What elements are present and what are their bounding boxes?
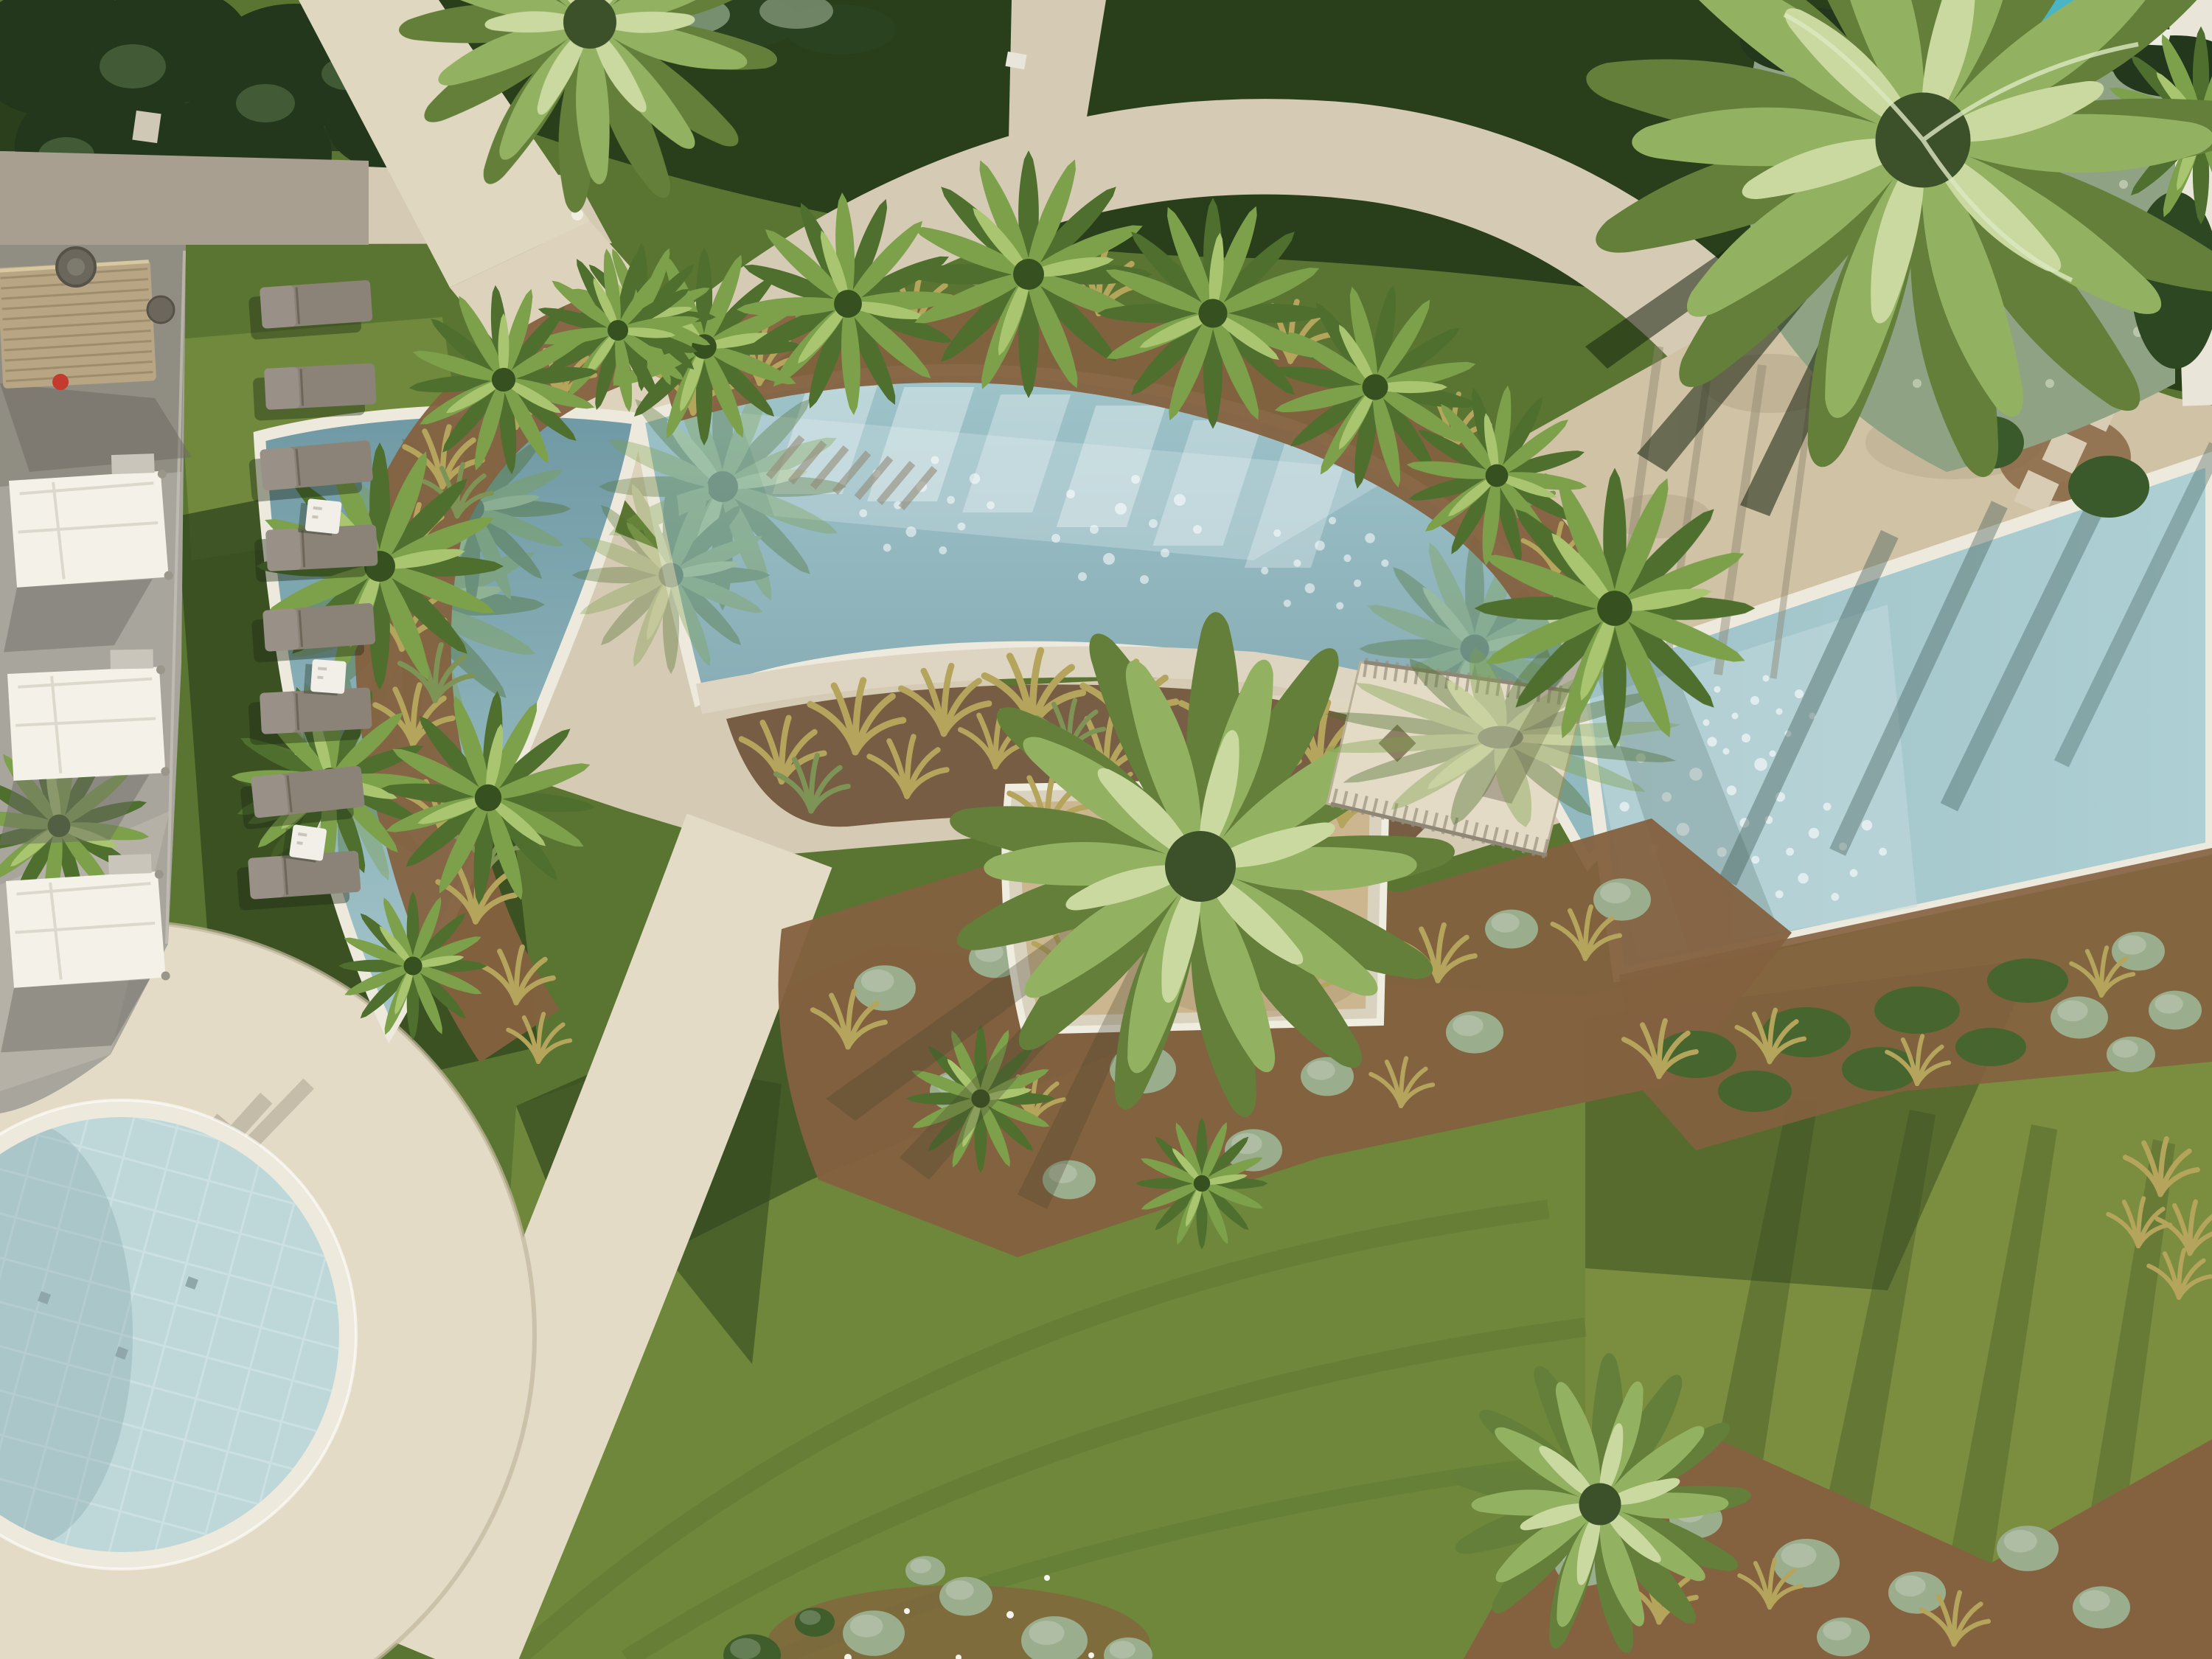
cabanas [0,453,175,1052]
fan-palm-bridge [1475,468,1756,749]
utility-box [132,111,161,143]
side-table[interactable] [282,824,327,863]
round-table-center [67,258,85,276]
sun-lounger[interactable] [252,363,377,421]
side-table[interactable] [298,498,342,536]
path-horizontal-shaded [0,151,369,245]
sun-lounger[interactable] [251,603,376,663]
side-table[interactable] [304,658,347,696]
sun-lounger[interactable] [248,440,374,502]
resort-garden-scene [0,0,2212,1659]
boxwood [2068,456,2149,518]
fan-palm [338,891,487,1040]
sun-lounger[interactable] [248,280,373,340]
round-table-small[interactable] [147,296,174,323]
aerial-photo [0,0,2212,1659]
small-fan-palm [1135,1117,1267,1249]
sun-lounger[interactable] [248,687,372,745]
